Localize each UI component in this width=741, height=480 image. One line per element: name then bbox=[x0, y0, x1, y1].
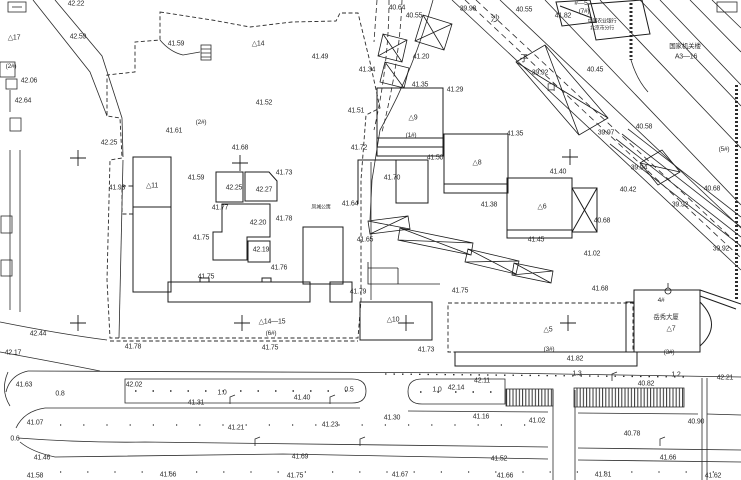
spot-elevation-label: 41.31 bbox=[188, 400, 205, 407]
spot-elevation-label: 41.16 bbox=[473, 414, 490, 421]
building-number-label: △17 bbox=[8, 35, 21, 42]
spot-elevation-label: 39.92 bbox=[713, 246, 730, 253]
spot-elevation-label: 41.38 bbox=[481, 202, 498, 209]
spot-elevation-label: 41.58 bbox=[27, 473, 44, 480]
spot-elevation-label: 41.62 bbox=[705, 473, 722, 480]
org-name-label: 凤城公寓 bbox=[311, 206, 330, 211]
building-number-label: △6 bbox=[538, 204, 547, 211]
spot-elevation-label: 42.17 bbox=[5, 350, 22, 357]
spot-elevation-label: 41.59 bbox=[168, 41, 185, 48]
spot-elevation-label: 41.45 bbox=[528, 237, 545, 244]
spot-elevation-label: 41.73 bbox=[418, 347, 435, 354]
spot-elevation-label: 41.68 bbox=[232, 145, 249, 152]
spot-elevation-label: 41.82 bbox=[555, 13, 572, 20]
spot-elevation-label: 40.64 bbox=[389, 5, 406, 12]
spot-elevation-label: 42.06 bbox=[21, 78, 38, 85]
street-name-char: 口 bbox=[547, 84, 556, 93]
spot-elevation-label: 40.55 bbox=[516, 7, 533, 14]
org-name-label: 北京市分行 bbox=[590, 27, 614, 32]
place-name-label: 岳秀大厦 bbox=[653, 315, 678, 322]
spot-elevation-label: 39.97 bbox=[598, 130, 615, 137]
spot-elevation-label: 41.52 bbox=[256, 100, 273, 107]
spot-elevation-label: 42.64 bbox=[15, 98, 32, 105]
block-ref-label: (7#) bbox=[579, 9, 590, 16]
spot-elevation-label: 41.40 bbox=[550, 169, 567, 176]
spot-elevation-label: 41.21 bbox=[228, 425, 245, 432]
spot-elevation-label: 40.68 bbox=[704, 186, 721, 193]
block-ref-label: (3#) bbox=[544, 347, 555, 354]
spot-elevation-label: 42.25 bbox=[226, 185, 243, 192]
spot-elevation-label: 42.20 bbox=[250, 220, 267, 227]
spot-elevation-label: 41.75 bbox=[198, 274, 215, 281]
spot-elevation-label: 40.82 bbox=[638, 381, 655, 388]
spot-elevation-label: 41.49 bbox=[312, 54, 329, 61]
spot-elevation-label: 41.40 bbox=[294, 395, 311, 402]
width-dimension-label: 0.6 bbox=[10, 436, 19, 443]
spot-elevation-label: 41.50 bbox=[427, 155, 444, 162]
block-ref-label: (2#) bbox=[196, 120, 207, 127]
spot-elevation-label: A3—16 bbox=[675, 54, 697, 61]
site-plan-canvas: 42.2242.59△17(2#)42.0642.6441.59(2#)41.6… bbox=[0, 0, 741, 480]
spot-elevation-label: 41.66 bbox=[660, 455, 677, 462]
spot-elevation-label: 41.07 bbox=[27, 420, 44, 427]
street-name-char: 子 bbox=[520, 55, 529, 64]
block-ref-label: (2#) bbox=[6, 64, 17, 71]
spot-elevation-label: 42.19 bbox=[253, 247, 270, 254]
spot-elevation-label: 41.75 bbox=[452, 288, 469, 295]
spot-elevation-label: 40.55 bbox=[406, 13, 423, 20]
spot-elevation-label: 41.59 bbox=[188, 175, 205, 182]
place-name-label: 国家机关楼 bbox=[669, 44, 701, 51]
spot-elevation-label: 42.59 bbox=[70, 34, 87, 41]
spot-elevation-label: 42.02 bbox=[126, 382, 143, 389]
spot-elevation-label: 41.23 bbox=[322, 422, 339, 429]
block-ref-label: #—5 bbox=[574, 1, 587, 8]
spot-elevation-label: 39.92 bbox=[532, 70, 549, 77]
width-dimension-label: 1.0 bbox=[432, 387, 441, 394]
spot-elevation-label: 41.35 bbox=[412, 82, 429, 89]
spot-elevation-label: 41.20 bbox=[413, 54, 430, 61]
spot-elevation-label: 41.75 bbox=[193, 235, 210, 242]
block-ref-label: (3#) bbox=[664, 350, 675, 357]
spot-elevation-label: 41.29 bbox=[447, 87, 464, 94]
spot-elevation-label: 41.02 bbox=[584, 251, 601, 258]
block-ref-label: 4# bbox=[658, 298, 665, 305]
map-labels: 42.2242.59△17(2#)42.0642.6441.59(2#)41.6… bbox=[0, 0, 741, 480]
spot-elevation-label: 40.78 bbox=[624, 431, 641, 438]
building-number-label: △14—15 bbox=[259, 319, 286, 326]
spot-elevation-label: 42.14 bbox=[448, 385, 465, 392]
spot-elevation-label: 41.34 bbox=[359, 67, 376, 74]
spot-elevation-label: 40.42 bbox=[620, 187, 637, 194]
block-ref-label: (5#) bbox=[719, 147, 730, 154]
building-number-label: △7 bbox=[667, 326, 676, 333]
spot-elevation-label: 41.82 bbox=[567, 356, 584, 363]
spot-elevation-label: 40.58 bbox=[636, 124, 653, 131]
building-number-label: △14 bbox=[252, 41, 265, 48]
spot-elevation-label: 41.76 bbox=[271, 265, 288, 272]
spot-elevation-label: 41.77 bbox=[212, 205, 229, 212]
building-number-label: △11 bbox=[146, 183, 158, 190]
spot-elevation-label: 39.92 bbox=[672, 202, 689, 209]
spot-elevation-label: 41.81 bbox=[595, 472, 612, 479]
spot-elevation-label: 39.98 bbox=[460, 6, 477, 13]
spot-elevation-label: 41.75 bbox=[262, 345, 279, 352]
spot-elevation-label: 42.21 bbox=[717, 375, 734, 382]
spot-elevation-label: 41.78 bbox=[276, 216, 293, 223]
block-ref-label: (1#) bbox=[406, 133, 417, 140]
spot-elevation-label: 41.70 bbox=[384, 175, 401, 182]
spot-elevation-label: 42.22 bbox=[68, 1, 85, 8]
spot-elevation-label: 41.65 bbox=[357, 237, 374, 244]
spot-elevation-label: 41.79 bbox=[350, 289, 367, 296]
spot-elevation-label: 40.45 bbox=[587, 67, 604, 74]
spot-elevation-label: 39.94 bbox=[631, 165, 648, 172]
spot-elevation-label: 41.75 bbox=[287, 473, 304, 480]
building-number-label: △9 bbox=[409, 115, 418, 122]
spot-elevation-label: 41.02 bbox=[529, 418, 546, 425]
spot-elevation-label: 41.61 bbox=[166, 128, 183, 135]
spot-elevation-label: 41.64 bbox=[342, 201, 359, 208]
spot-elevation-label: 40.68 bbox=[594, 218, 611, 225]
spot-elevation-label: 40.90 bbox=[688, 419, 705, 426]
width-dimension-label: 1.0 bbox=[217, 390, 226, 397]
building-number-label: △5 bbox=[544, 327, 553, 334]
spot-elevation-label: 41.63 bbox=[16, 382, 33, 389]
spot-elevation-label: 41.78 bbox=[125, 344, 142, 351]
spot-elevation-label: 41.73 bbox=[276, 170, 293, 177]
spot-elevation-label: 41.68 bbox=[592, 286, 609, 293]
building-number-label: △8 bbox=[473, 160, 482, 167]
spot-elevation-label: 41.66 bbox=[497, 473, 514, 480]
spot-elevation-label: 41.93 bbox=[109, 185, 126, 192]
spot-elevation-label: 42.25 bbox=[101, 140, 118, 147]
spot-elevation-label: 41.52 bbox=[491, 456, 508, 463]
spot-elevation-label: 42.44 bbox=[30, 331, 47, 338]
spot-elevation-label: 41.46 bbox=[34, 455, 51, 462]
spot-elevation-label: 42.11 bbox=[474, 378, 490, 385]
spot-elevation-label: 41.51 bbox=[348, 108, 365, 115]
spot-elevation-label: 41.66 bbox=[160, 472, 177, 479]
street-name-char: 沙 bbox=[491, 15, 500, 24]
width-dimension-label: 1.3 bbox=[572, 371, 581, 378]
width-dimension-label: 0.5 bbox=[344, 387, 353, 394]
block-ref-label: (6#) bbox=[266, 331, 277, 338]
width-dimension-label: 1.2 bbox=[671, 372, 680, 379]
spot-elevation-label: 41.30 bbox=[384, 415, 401, 422]
spot-elevation-label: 41.35 bbox=[507, 131, 524, 138]
spot-elevation-label: 41.72 bbox=[351, 145, 368, 152]
spot-elevation-label: 41.67 bbox=[392, 472, 409, 479]
org-name-label: 中国农业银行 bbox=[588, 20, 617, 25]
spot-elevation-label: 41.69 bbox=[292, 454, 309, 461]
width-dimension-label: 0.8 bbox=[55, 391, 64, 398]
building-number-label: △10 bbox=[387, 317, 400, 324]
spot-elevation-label: 42.27 bbox=[256, 187, 273, 194]
